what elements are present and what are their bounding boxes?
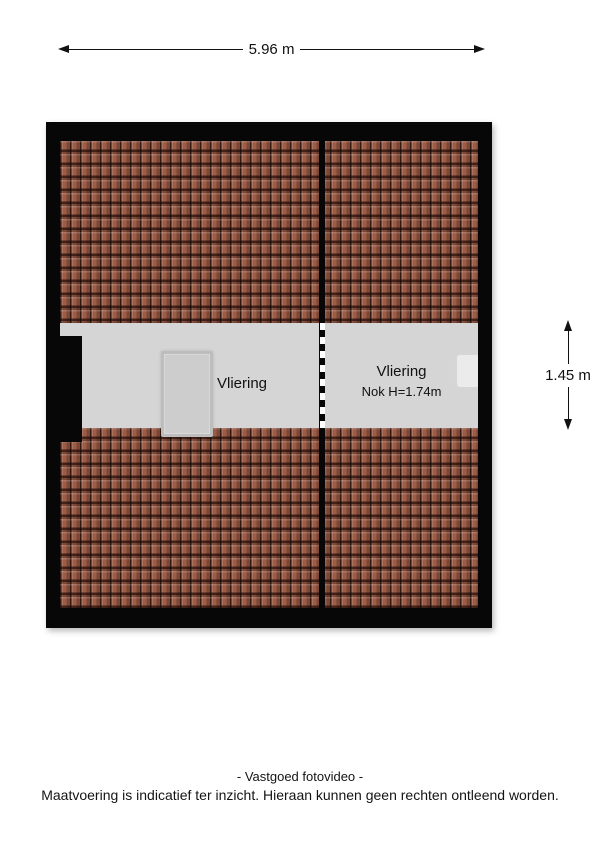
- dimension-line: [300, 49, 474, 50]
- footer: - Vastgoed fotovideo - Maatvoering is in…: [0, 768, 600, 804]
- room-label-vliering-right: Vliering: [325, 363, 478, 380]
- floorplan-page: 5.96 m 1.45 m Vliering Vliering Nok H=1.…: [0, 0, 600, 848]
- height-dimension-label: 1.45 m: [545, 364, 591, 387]
- arrowhead-down-icon: [564, 419, 572, 430]
- arrowhead-right-icon: [474, 45, 485, 53]
- dimension-line: [568, 387, 569, 420]
- arrowhead-left-icon: [58, 45, 69, 53]
- room-vliering-right-labels: Vliering Nok H=1.74m: [325, 363, 478, 399]
- ridge-height-label: Nok H=1.74m: [325, 384, 478, 399]
- floor-plan-interior: Vliering Vliering Nok H=1.74m: [60, 141, 478, 608]
- footer-disclaimer: Maatvoering is indicatief ter inzicht. H…: [0, 786, 600, 804]
- roof-tiles-upper: [60, 141, 478, 323]
- arrowhead-up-icon: [564, 320, 572, 331]
- left-wall-section: [60, 336, 82, 442]
- dimension-line: [69, 49, 243, 50]
- floor-plan: Vliering Vliering Nok H=1.74m: [46, 122, 492, 628]
- height-dimension: 1.45 m: [544, 320, 592, 430]
- dimension-line: [568, 331, 569, 364]
- footer-credit: - Vastgoed fotovideo -: [0, 768, 600, 786]
- room-label-vliering-left: Vliering: [217, 375, 267, 392]
- attic-hatch: [161, 351, 213, 437]
- width-dimension-label: 5.96 m: [243, 41, 301, 58]
- roof-tiles-lower: [60, 428, 478, 608]
- width-dimension: 5.96 m: [58, 40, 485, 58]
